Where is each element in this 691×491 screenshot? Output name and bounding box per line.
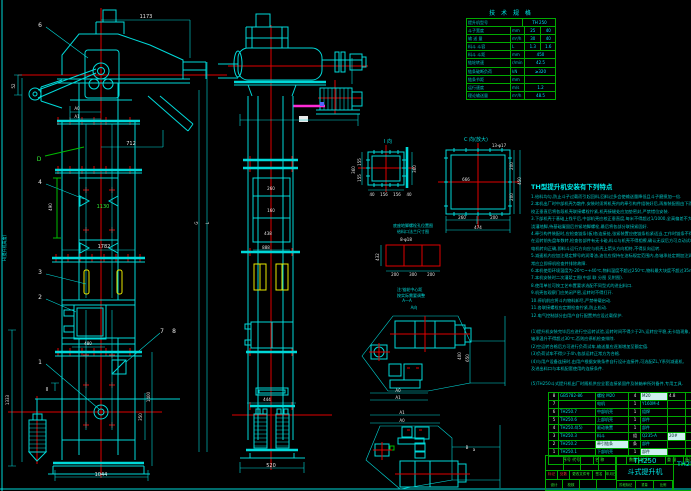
- tension-wheel: [29, 88, 41, 100]
- flange-outline: [386, 245, 440, 266]
- dim-160: 160: [267, 208, 275, 213]
- dim-155a: 155: [357, 158, 362, 166]
- title-block-revision-area: 标记 处数 更改文件号 签名 年月日 设计 校核: [546, 456, 617, 490]
- dim-432: 432: [375, 253, 380, 261]
- boot-base: [240, 453, 305, 458]
- dim-360r: 360: [412, 165, 417, 173]
- dim-360l: 360: [351, 166, 356, 174]
- balloon-4: 4: [38, 179, 42, 186]
- note-line: 4.牵引构件装配时,应检查链条(板)各连接处,张紧装置应使链条松紧适当,工作时链…: [531, 230, 691, 237]
- note-line: (5)TH250斗式提升机出厂时随机供应全套连接紧固件及装箱单所列备件,专用工具…: [531, 380, 691, 387]
- note-line: 3.下部机壳于基础上找平后,中部机壳应校正垂直度,每米不得超过1/1000,全高…: [531, 215, 691, 222]
- note-line: 10.停机前应将斗内物料卸尽,严禁带载启动.: [531, 297, 691, 304]
- dim-300: 300: [409, 272, 417, 277]
- dim-712: 712: [126, 141, 136, 147]
- dim-888: 888: [262, 245, 270, 250]
- drive-plan-view-top: A0 A1 400 650: [362, 316, 505, 400]
- dim-1782: 1782: [98, 244, 111, 250]
- note-line: 5.减速机内应加注规定牌号的润滑油,油位应保持在油标规定范围内,各轴承处定期加注…: [531, 252, 691, 259]
- model-number: TH250: [617, 456, 673, 467]
- head-roller-right: [103, 79, 113, 89]
- drawing-code: TH250.0: [674, 456, 691, 490]
- drawing-title: TH250 斗式提升机: [617, 456, 673, 480]
- flange-band-edges: [52, 124, 145, 466]
- dim-400: 400: [457, 352, 462, 360]
- signature-row: 设计 校核: [546, 480, 616, 490]
- dim-490: 490: [48, 203, 53, 211]
- dim-a1: A1: [74, 114, 80, 119]
- notes-block-main: 1.给料均匀,防止斗子过载而引起回料,回料过多会使输送量降低且斗子磨损加一倍. …: [531, 193, 691, 319]
- title-block: 标记 处数 更改文件号 签名 年月日 设计 校核 TH250 斗式提升机 阶段标…: [545, 455, 691, 491]
- table-row: 输 送 量m³/h3040: [467, 35, 555, 43]
- tension-wheel-hub: [33, 92, 37, 96]
- dim-474: 474: [474, 225, 482, 230]
- boot-door: [64, 305, 106, 339]
- dim-a1: A1: [395, 395, 401, 400]
- motor-fins: [324, 88, 348, 110]
- selected-dim-block: [299, 116, 308, 122]
- dim-52: 52: [11, 83, 16, 89]
- blue-grip: [320, 102, 324, 106]
- dim-155b: 155: [357, 174, 362, 182]
- note-line: (1)提升机安装完毕后应进行空运转试验,运转时间不得少于2h,运转应平稳,无卡链…: [531, 328, 691, 335]
- couplings: [335, 52, 366, 72]
- table-row: 料斗 斗距mm450: [467, 51, 555, 59]
- head-housing: [57, 10, 206, 131]
- cell: [599, 456, 617, 470]
- note-line: (4)与用户设备连接时,由用户根据安装条件自行设计连接件,可选配ZL,Y系列减速…: [531, 358, 691, 365]
- note-line: 校正垂直后将各段机壳联接螺栓拧紧,机壳接缝处应加垫密封,严禁错位安装.: [531, 208, 691, 215]
- note-line: 在运转前先盘车数转,检查各部件有无卡碰,料斗与机壳不得相擦,确认无误后方可点动试…: [531, 237, 691, 244]
- detail-view-c: C 向(放大) 13-φ17 666 260 200 474 200 200 4…: [393, 136, 522, 233]
- dim-a0: A0: [74, 106, 80, 111]
- table-row: 链轮转速r/min42.5: [467, 59, 555, 67]
- dim-156b: 156: [393, 192, 401, 197]
- side-elevation-view: 260 160 438 888 444 520: [218, 14, 368, 473]
- note-line: 轴承温升不得超过30℃,否则应停机检查排除.: [531, 335, 691, 342]
- green-grip: [390, 446, 394, 450]
- balloon-8: 8: [172, 328, 176, 335]
- note-line: 11.各联接螺栓应定期检查拧紧,防止松动.: [531, 304, 691, 311]
- dim-40a: 40: [369, 192, 375, 197]
- dim-520: 520: [266, 463, 276, 469]
- dim-156a: 156: [380, 192, 388, 197]
- label-aa: A—A: [402, 298, 412, 303]
- table-row: 提升机型号TH 250: [467, 19, 555, 27]
- label-l: L: [205, 221, 210, 224]
- table-row: 理论输送量m³/h48.5: [467, 92, 555, 99]
- dim-1173: 1173: [140, 14, 153, 20]
- tech-table-title: 技 术 规 格: [466, 8, 556, 18]
- cad-sheet: 1173 712 A0 A1 52 490 1130 1782 480 1044…: [0, 0, 691, 491]
- note-line: 及进出料口与本机配套使用的连接条件.: [531, 365, 691, 372]
- detail-c-title: C 向(放大): [464, 136, 488, 143]
- attribute-cells: 阶段标记 重量 比例: [617, 480, 673, 490]
- outline: [366, 426, 452, 489]
- note-line: 浇灌地脚,待基础凝固后拧紧地脚螺栓,最后将各部分联接紧固好.: [531, 223, 691, 230]
- side-door: [112, 360, 126, 374]
- dim-350: 350: [138, 413, 143, 421]
- note-line: 电机转向正确,即料斗运行方向应与机壳上箭头方向相符,不得反向运转.: [531, 245, 691, 252]
- head-roller-left: [89, 79, 99, 89]
- bucket-left: [84, 270, 89, 294]
- cell: [546, 456, 564, 470]
- hole-note: 8-φ18: [400, 237, 412, 242]
- label-a-view: A向: [411, 304, 418, 310]
- cell: [564, 456, 582, 470]
- head-top-box: [218, 14, 288, 78]
- dim-1333: 1333: [5, 394, 10, 405]
- dim-650: 650: [465, 354, 470, 362]
- detail-i-title: I 向: [384, 138, 392, 145]
- dim-a0: A0: [399, 418, 405, 423]
- dim-200r1: 200: [509, 162, 514, 170]
- centerlines: [438, 143, 520, 228]
- gearbox-blocks: [398, 427, 429, 458]
- dim-200b: 200: [490, 215, 498, 220]
- note-line: 1.给料均匀,防止斗子过载而引起回料,回料过多会使输送量降低且斗子磨损加一倍.: [531, 193, 691, 200]
- dim-200b: 200: [427, 272, 435, 277]
- head-platform-edge: [234, 85, 326, 96]
- table-row: 6TH250.7中部机壳1组焊: [549, 409, 691, 417]
- table-row: 链条节距mm: [467, 76, 555, 84]
- dim-260: 260: [458, 215, 466, 220]
- tech-data-table: 技 术 规 格 提升机型号TH 250 斗子宽度mm2540 输 送 量m³/h…: [466, 8, 556, 100]
- bolt-marks: [56, 117, 140, 428]
- table-row: 7电机1Y160M-4: [549, 401, 691, 409]
- cell: [581, 456, 599, 470]
- table-row: 8GB5782-86螺栓 M204M204.8: [549, 393, 691, 401]
- dim-a0: A0: [395, 388, 401, 393]
- note-line: 12.电气控制部分由用户自行配置并应设过载保护.: [531, 312, 691, 319]
- notes-block-supply: (5)TH250斗式提升机出厂时随机供应全套连接紧固件及装箱单所列备件,专用工具…: [531, 380, 691, 387]
- dim-1400: 1400: [146, 391, 151, 402]
- product-name: 斗式提升机: [617, 467, 673, 478]
- dim-1130: 1130: [97, 204, 110, 210]
- head-drum-housing: [238, 48, 322, 80]
- note-line: (3)负荷试车不得少于4h,各部运转正常方为合格.: [531, 350, 691, 357]
- boot-hopper: [245, 322, 293, 348]
- dim-260: 260: [267, 186, 275, 191]
- dim-a1: A1: [399, 410, 405, 415]
- green-dim-490: [45, 147, 84, 238]
- label-g: G: [194, 221, 199, 224]
- detail-c-caption: 底座地脚螺栓孔位置图: [393, 222, 433, 228]
- table-row: 2TH250.2牵引链条条部件: [549, 441, 691, 449]
- note-line: 2.本机出厂时中部机壳为散件,安装时须将机壳内的牵引构件组装好后,再按装配图由下…: [531, 200, 691, 207]
- spring-left: [254, 414, 267, 448]
- section-mark-ii: II: [46, 387, 49, 393]
- feed-caption: 给料口法兰尺寸图: [397, 228, 429, 234]
- note-line: 7.本机安装时二次灌浆工图(中部 联 分图 见附图).: [531, 274, 691, 281]
- notes-block-tests: (1)提升机安装完毕后应进行空运转试验,运转时间不得少于2h,运转应平稳,无卡链…: [531, 328, 691, 372]
- dim-480: 480: [84, 341, 92, 346]
- label-height: H(提升机高度): [1, 235, 7, 262]
- table-row: 链条破断负荷kN≥320: [467, 68, 555, 76]
- balloon-1: 1: [38, 359, 42, 366]
- table-row: 5TH250.6上部机壳1部件: [549, 417, 691, 425]
- table-row: 运行速度m/s1.2: [467, 84, 555, 92]
- balloon-2: 2: [38, 294, 42, 301]
- dim-a: a: [473, 447, 476, 452]
- dim-444: 444: [263, 397, 271, 402]
- revision-header-row: 标记 处数 更改文件号 签名 年月日: [546, 471, 616, 480]
- balloon-6: 6: [38, 22, 42, 29]
- feed-opening-detail: 给料口法兰尺寸图 8-φ18 200 300 200 432 注:链轮中心距 按…: [375, 228, 440, 310]
- balloon-3: 3: [38, 269, 42, 276]
- dim-450: 450: [517, 177, 522, 185]
- detail-view-i: I 向 40 156 156 40 155 155 360 360: [351, 138, 417, 197]
- note-line: 6.本机使用环境温度为-20℃~+40℃,物料温度不超过250℃,物料最大块度不…: [531, 267, 691, 274]
- note-line: (2)空运转合格后方可进行负荷试车,输送量应逐渐增加至额定值.: [531, 343, 691, 350]
- balloon-7: 7: [160, 328, 164, 335]
- dim-1044: 1044: [95, 472, 108, 478]
- dim-666: 666: [462, 177, 470, 182]
- front-elevation-view: 1173 712 A0 A1 52 490 1130 1782 480 1044…: [1, 8, 227, 481]
- dim-200r2: 200: [509, 193, 514, 201]
- tech-table-grid: 提升机型号TH 250 斗子宽度mm2540 输 送 量m³/h3040 料斗 …: [466, 18, 556, 100]
- note-line: 常应立即停机检查并排除故障.: [531, 260, 691, 267]
- table-row: 斗子宽度mm2540: [467, 27, 555, 35]
- hole-note: 13-φ17: [492, 143, 507, 148]
- drive-plan-view-bottom: A1 A0 B a: [366, 410, 500, 489]
- notes-heading: TH型提升机安装有下列特点: [531, 181, 691, 191]
- table-row: 4TH250.4(5)驱动装置1部件: [549, 425, 691, 433]
- note-line: 9.机壳各观察门应关闭严密,运转时不得打开.: [531, 289, 691, 296]
- dimension-lines: [381, 245, 440, 271]
- table-row: 3TH250.3料斗组Q235-A20#: [549, 433, 691, 441]
- label-d: D: [37, 156, 42, 163]
- remark-line1: 注:链轮中心距: [397, 286, 422, 292]
- dim-40b: 40: [406, 192, 412, 197]
- dim-438: 438: [264, 231, 272, 236]
- dim-200a: 200: [391, 272, 399, 277]
- revision-grid: [546, 456, 616, 471]
- note-line: 8.使用单位可按工艺布置要求选配不同型式的进出料口.: [531, 282, 691, 289]
- dim-b: B: [466, 445, 469, 450]
- table-row: 料斗 斗容L1.31.6: [467, 43, 555, 51]
- title-block-name-area: TH250 斗式提升机 阶段标记 重量 比例: [617, 456, 674, 490]
